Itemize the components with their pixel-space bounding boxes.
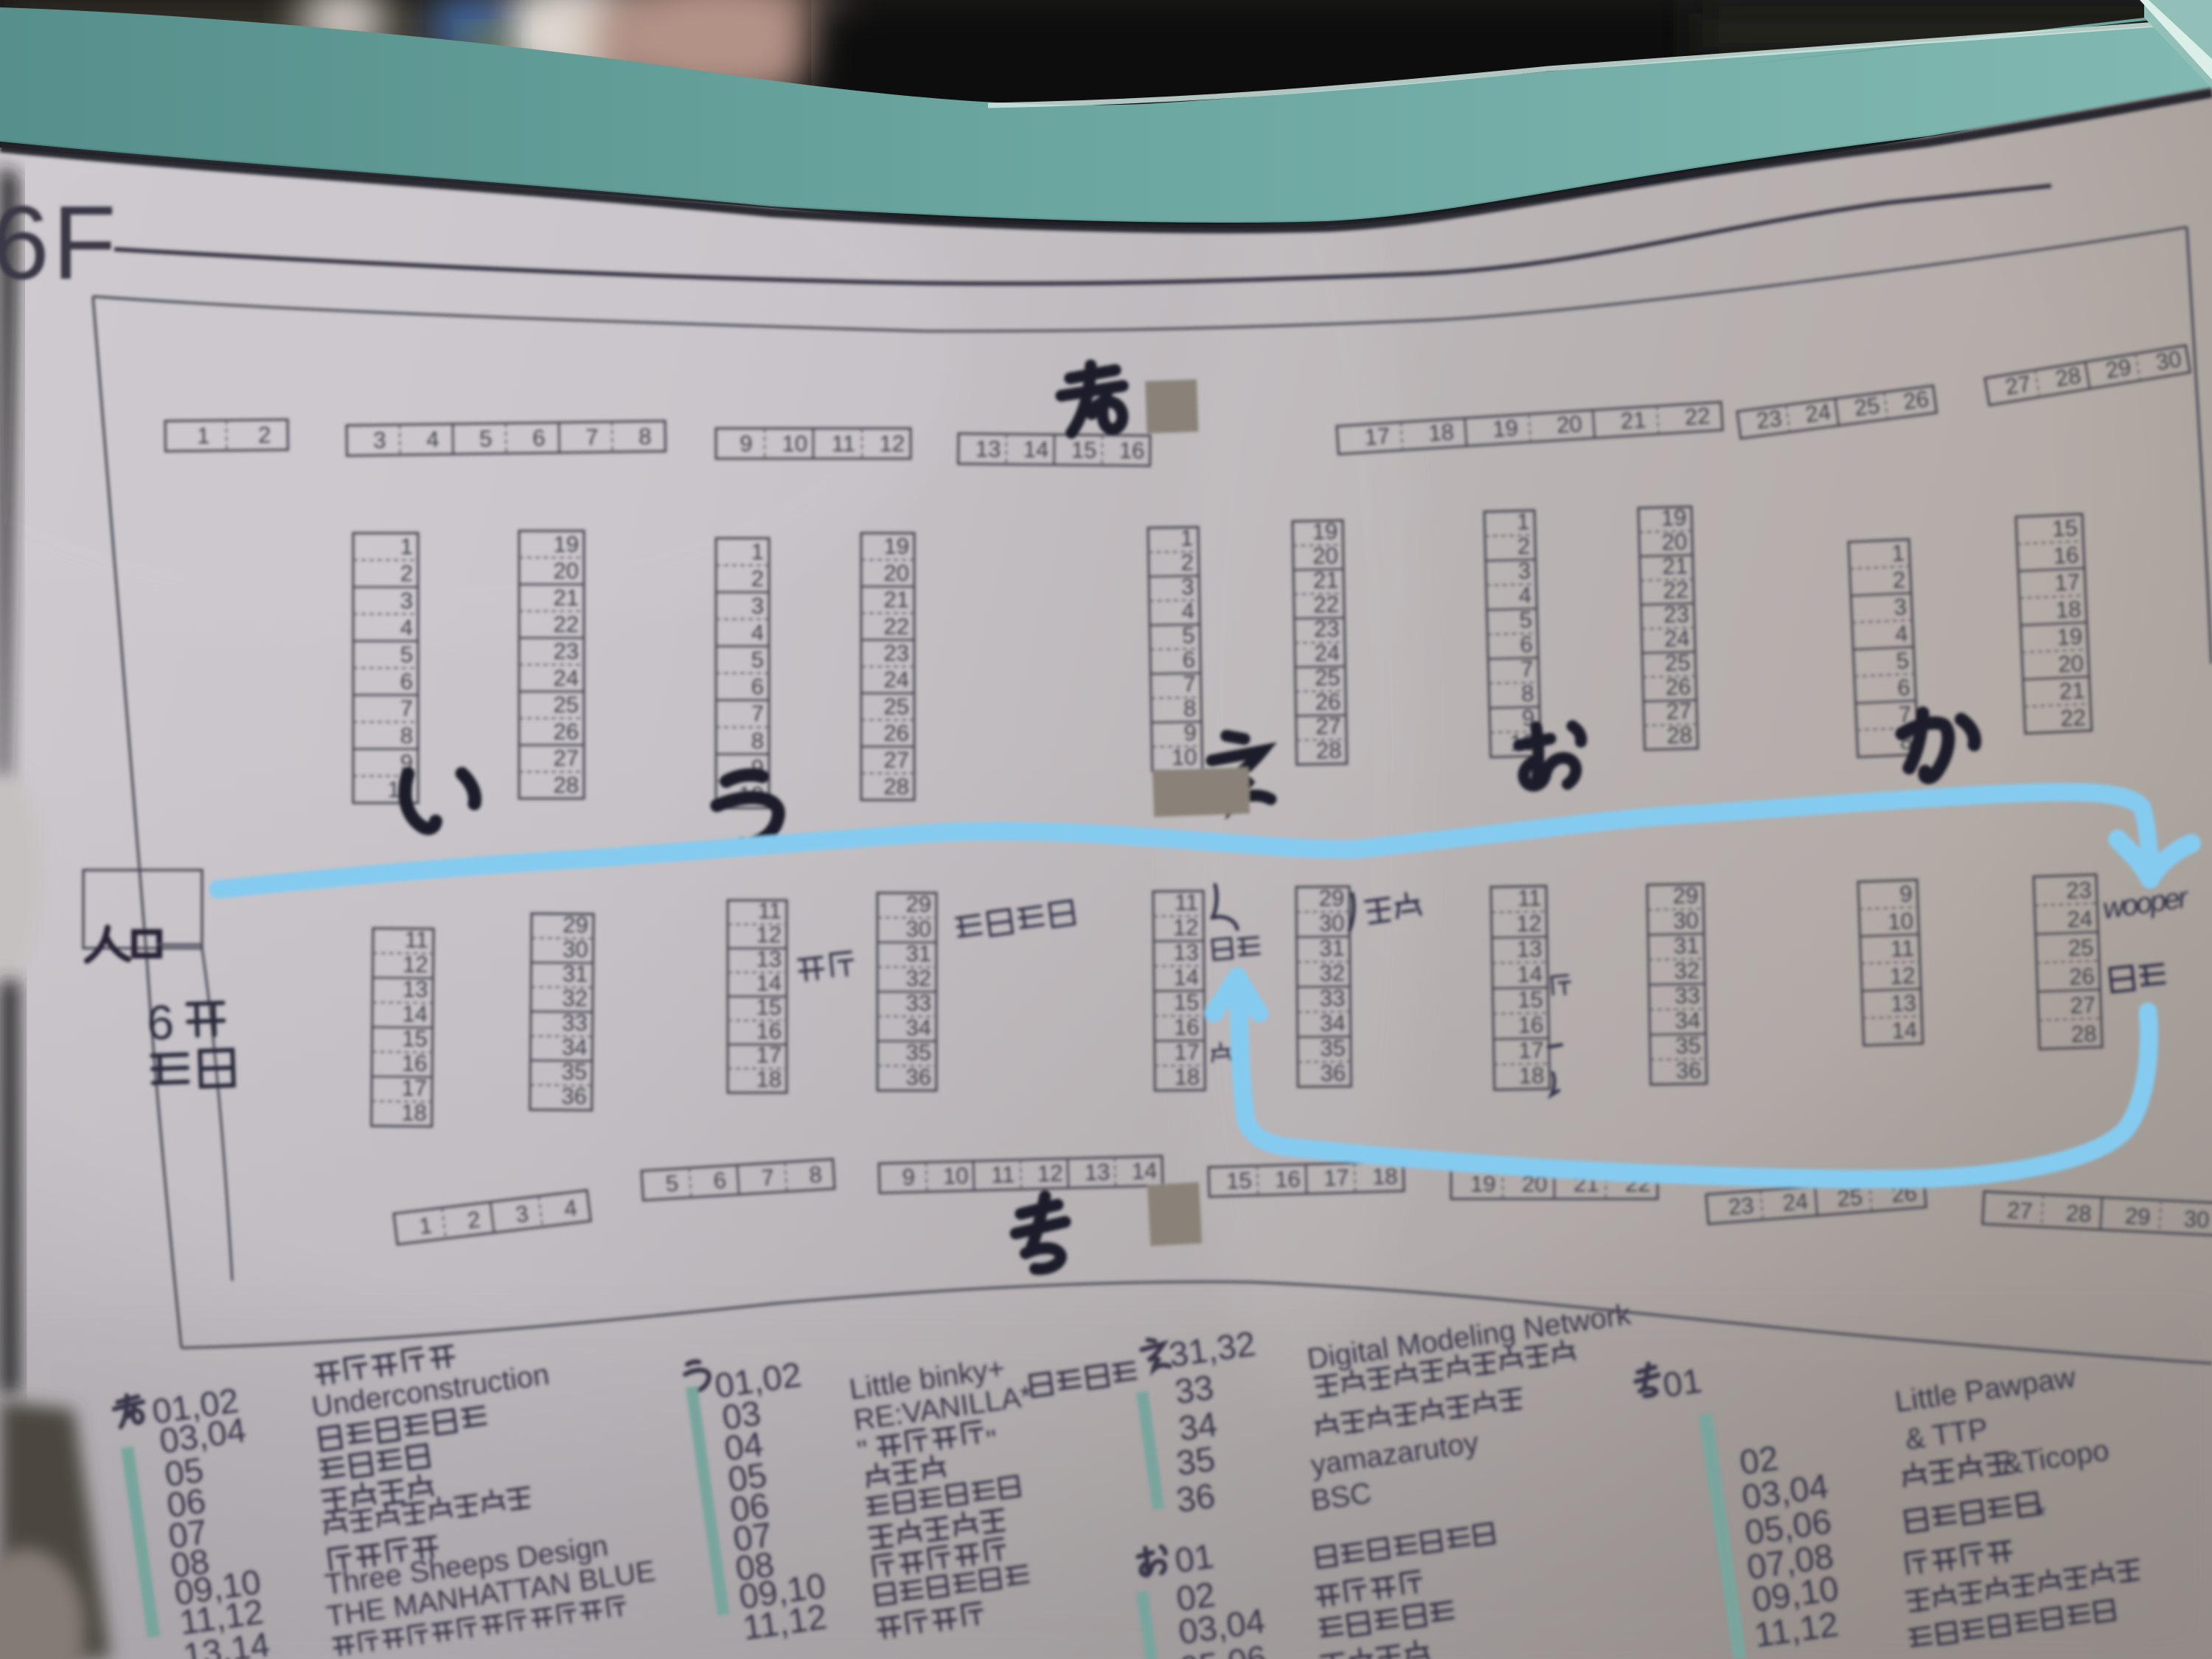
svg-text:3: 3 [1517, 557, 1531, 583]
svg-text:27: 27 [884, 747, 909, 773]
svg-text:5: 5 [1182, 622, 1195, 648]
svg-text:36: 36 [1321, 1060, 1346, 1086]
svg-text:24: 24 [1664, 625, 1690, 652]
svg-text:12: 12 [403, 951, 428, 977]
svg-text:15: 15 [2052, 515, 2079, 541]
svg-text:1: 1 [1180, 525, 1194, 551]
svg-text:15: 15 [1174, 989, 1200, 1015]
svg-text:21: 21 [2059, 678, 2085, 704]
svg-text:27: 27 [1666, 698, 1691, 724]
svg-text:16: 16 [1275, 1166, 1301, 1192]
svg-text:11: 11 [758, 898, 782, 924]
svg-text:16: 16 [1174, 1014, 1200, 1040]
svg-text:31: 31 [1674, 932, 1700, 959]
svg-text:12: 12 [880, 431, 905, 456]
svg-text:5: 5 [1519, 607, 1532, 633]
svg-text:34: 34 [1674, 1007, 1700, 1034]
svg-text:30: 30 [906, 916, 931, 942]
svg-text:22: 22 [1313, 591, 1339, 618]
svg-text:36: 36 [1676, 1057, 1702, 1084]
svg-text:2: 2 [1180, 549, 1194, 575]
svg-text:33: 33 [906, 990, 931, 1016]
svg-text:26: 26 [554, 718, 579, 744]
svg-text:36: 36 [561, 1083, 587, 1109]
svg-text:34: 34 [906, 1015, 931, 1040]
svg-text:11: 11 [1517, 885, 1542, 911]
svg-text:20: 20 [554, 558, 579, 584]
svg-text:32: 32 [1319, 960, 1345, 986]
svg-text:7: 7 [400, 695, 413, 721]
svg-text:6: 6 [1183, 647, 1196, 672]
svg-text:5: 5 [479, 425, 493, 451]
svg-text:19: 19 [1312, 518, 1338, 545]
svg-text:34: 34 [1320, 1010, 1346, 1036]
svg-text:27: 27 [2006, 1197, 2033, 1225]
svg-text:16: 16 [1517, 1012, 1543, 1038]
svg-text:4: 4 [426, 426, 439, 452]
svg-text:3: 3 [1893, 594, 1907, 620]
svg-text:22: 22 [884, 613, 909, 639]
svg-text:22: 22 [554, 611, 579, 637]
svg-text:25: 25 [884, 693, 909, 719]
svg-text:11: 11 [405, 927, 428, 953]
svg-text:18: 18 [2055, 596, 2081, 622]
svg-text:26: 26 [1902, 386, 1930, 414]
svg-text:1: 1 [1891, 540, 1905, 566]
svg-text:23: 23 [884, 640, 909, 666]
svg-text:6: 6 [1520, 631, 1533, 657]
svg-text:3: 3 [1181, 574, 1194, 599]
svg-text:7: 7 [1520, 655, 1534, 681]
svg-text:4: 4 [1894, 621, 1908, 647]
svg-text:21: 21 [1620, 407, 1647, 434]
svg-text:24: 24 [1804, 399, 1832, 428]
svg-text:2: 2 [1517, 533, 1531, 559]
svg-text:15: 15 [1517, 987, 1543, 1013]
svg-text:24: 24 [1314, 640, 1340, 667]
svg-text:25: 25 [554, 692, 579, 717]
svg-text:30: 30 [1673, 908, 1699, 934]
svg-text:20: 20 [1312, 543, 1338, 569]
svg-text:15: 15 [1071, 437, 1097, 463]
svg-text:23: 23 [1728, 1192, 1755, 1220]
svg-text:3: 3 [373, 427, 386, 453]
svg-text:14: 14 [757, 970, 782, 995]
svg-text:23: 23 [1755, 405, 1784, 434]
svg-text:16: 16 [402, 1050, 428, 1076]
svg-text:10: 10 [1172, 744, 1197, 771]
svg-text:25: 25 [2067, 934, 2094, 961]
svg-text:32: 32 [562, 985, 588, 1011]
svg-text:10: 10 [782, 431, 807, 456]
svg-text:19: 19 [1492, 415, 1519, 442]
svg-text:5: 5 [751, 647, 764, 672]
svg-text:9: 9 [902, 1164, 915, 1190]
svg-text:30: 30 [563, 936, 588, 962]
svg-text:25: 25 [1665, 650, 1691, 676]
svg-text:24: 24 [884, 667, 909, 692]
svg-text:15: 15 [1226, 1167, 1253, 1194]
svg-text:6F: 6F [0, 184, 119, 302]
svg-text:27: 27 [2070, 992, 2096, 1018]
svg-text:20: 20 [884, 560, 909, 585]
svg-text:17: 17 [1174, 1039, 1200, 1065]
svg-text:23: 23 [554, 639, 579, 664]
svg-text:14: 14 [1131, 1158, 1157, 1184]
svg-text:36: 36 [906, 1064, 931, 1090]
svg-text:16: 16 [1119, 437, 1145, 463]
svg-text:7: 7 [585, 424, 599, 450]
svg-text:23: 23 [2066, 877, 2093, 903]
svg-text:15: 15 [402, 1026, 428, 1051]
svg-text:17: 17 [1324, 1164, 1350, 1191]
svg-text:18: 18 [1427, 419, 1455, 446]
svg-text:30: 30 [2154, 346, 2183, 375]
svg-text:11: 11 [1890, 935, 1914, 961]
svg-text:12: 12 [1889, 962, 1916, 989]
svg-text:32: 32 [1674, 957, 1700, 984]
svg-text:19: 19 [554, 531, 579, 557]
svg-text:1: 1 [400, 534, 413, 560]
svg-text:16: 16 [757, 1018, 782, 1044]
svg-text:13: 13 [757, 946, 782, 972]
svg-text:27: 27 [554, 745, 579, 771]
svg-text:9: 9 [740, 431, 752, 456]
svg-text:13: 13 [1084, 1159, 1110, 1186]
svg-text:28: 28 [1316, 737, 1342, 764]
svg-text:18: 18 [1175, 1064, 1200, 1090]
svg-text:26: 26 [2069, 963, 2096, 990]
svg-text:2: 2 [400, 560, 413, 586]
svg-text:19: 19 [2056, 623, 2083, 650]
svg-text:21: 21 [884, 587, 909, 613]
svg-text:26: 26 [884, 720, 909, 746]
svg-text:23: 23 [1663, 601, 1689, 627]
svg-text:27: 27 [1315, 713, 1341, 740]
svg-text:12: 12 [1037, 1160, 1062, 1186]
svg-text:33: 33 [1674, 982, 1700, 1009]
svg-text:20: 20 [2058, 650, 2084, 677]
svg-text:29: 29 [2104, 354, 2133, 383]
svg-text:28: 28 [1666, 722, 1692, 748]
svg-text:6: 6 [532, 425, 546, 451]
svg-text:28: 28 [884, 773, 909, 799]
svg-text:1: 1 [1517, 509, 1530, 535]
svg-text:9: 9 [1183, 720, 1197, 745]
svg-text:29: 29 [2124, 1203, 2151, 1230]
svg-text:8: 8 [1521, 681, 1534, 706]
svg-text:19: 19 [1660, 504, 1686, 531]
svg-text:2: 2 [1892, 567, 1906, 594]
svg-text:29: 29 [1318, 885, 1344, 911]
svg-text:01: 01 [1172, 1536, 1216, 1580]
svg-text:5: 5 [1896, 647, 1910, 674]
svg-text:28: 28 [554, 772, 579, 798]
svg-text:31: 31 [1319, 935, 1345, 961]
svg-text:8: 8 [1183, 695, 1197, 721]
svg-text:7: 7 [760, 1164, 774, 1191]
svg-text:14: 14 [1023, 437, 1049, 462]
svg-text:8: 8 [400, 723, 413, 748]
svg-text:4: 4 [1518, 582, 1531, 608]
svg-text:28: 28 [2053, 362, 2083, 392]
svg-text:21: 21 [1662, 553, 1688, 580]
svg-text:19: 19 [1470, 1171, 1495, 1197]
svg-text:28: 28 [2070, 1020, 2097, 1047]
svg-text:35: 35 [1675, 1032, 1701, 1059]
svg-text:17: 17 [1364, 423, 1391, 451]
svg-text:12: 12 [1516, 911, 1542, 937]
svg-text:4: 4 [400, 614, 413, 640]
svg-text:4: 4 [751, 619, 764, 645]
svg-text:2: 2 [258, 422, 271, 448]
svg-text:15: 15 [757, 994, 782, 1020]
svg-text:6: 6 [751, 674, 764, 700]
svg-text:11: 11 [832, 431, 855, 456]
svg-text:30: 30 [2183, 1206, 2210, 1233]
svg-text:1: 1 [197, 422, 210, 448]
svg-text:18: 18 [1519, 1062, 1545, 1089]
svg-text:32: 32 [906, 965, 931, 991]
svg-text:29: 29 [1672, 883, 1698, 909]
svg-text:6: 6 [713, 1167, 727, 1194]
svg-text:01: 01 [1660, 1360, 1704, 1405]
svg-text:30: 30 [1319, 910, 1345, 936]
svg-text:31: 31 [906, 941, 931, 967]
svg-text:3: 3 [751, 593, 764, 619]
svg-text:10: 10 [1888, 908, 1914, 934]
svg-text:14: 14 [1891, 1017, 1918, 1043]
svg-text:16: 16 [2053, 542, 2079, 568]
svg-text:35: 35 [561, 1059, 587, 1085]
svg-text:29: 29 [563, 912, 588, 938]
svg-text:13: 13 [975, 436, 1001, 462]
svg-text:14: 14 [1173, 964, 1199, 990]
svg-text:5: 5 [665, 1170, 679, 1197]
svg-text:25: 25 [1836, 1184, 1863, 1212]
svg-text:2: 2 [751, 566, 764, 591]
svg-text:7: 7 [751, 700, 764, 726]
svg-text:13: 13 [1173, 939, 1199, 965]
svg-text:10: 10 [942, 1163, 968, 1189]
svg-text:17: 17 [2054, 569, 2081, 596]
svg-text:13: 13 [1891, 990, 1917, 1016]
svg-text:18: 18 [401, 1099, 427, 1125]
svg-text:18: 18 [1372, 1163, 1399, 1189]
svg-text:11: 11 [991, 1161, 1015, 1188]
svg-text:29: 29 [906, 891, 931, 917]
svg-text:21: 21 [1313, 567, 1339, 594]
svg-text:34: 34 [562, 1034, 588, 1060]
svg-text:24: 24 [554, 665, 579, 691]
svg-text:18: 18 [757, 1066, 782, 1092]
svg-text:12: 12 [757, 922, 782, 947]
svg-text:22: 22 [2060, 705, 2087, 731]
svg-text:14: 14 [402, 1001, 428, 1026]
svg-text:6: 6 [146, 995, 175, 1050]
svg-text:17: 17 [757, 1042, 782, 1068]
svg-text:20: 20 [1661, 529, 1687, 555]
svg-text:23: 23 [1314, 616, 1340, 642]
svg-text:5: 5 [400, 641, 413, 667]
svg-text:22: 22 [1684, 403, 1711, 430]
svg-text:24: 24 [1782, 1188, 1809, 1216]
svg-text:35: 35 [906, 1040, 931, 1065]
svg-text:13: 13 [1517, 936, 1543, 962]
svg-text:8: 8 [808, 1161, 822, 1188]
svg-text:33: 33 [562, 1009, 588, 1035]
svg-text:8: 8 [751, 728, 764, 754]
svg-text:6: 6 [1897, 675, 1911, 701]
svg-text:19: 19 [884, 533, 909, 559]
svg-text:7: 7 [1183, 671, 1196, 697]
svg-text:3: 3 [400, 588, 413, 613]
svg-text:35: 35 [1320, 1035, 1346, 1061]
svg-text:11: 11 [1175, 889, 1198, 915]
svg-text:22: 22 [1663, 577, 1688, 603]
svg-text:14: 14 [1517, 961, 1543, 987]
svg-text:24: 24 [2067, 905, 2093, 932]
svg-text:27: 27 [2003, 370, 2033, 400]
svg-text:36: 36 [1174, 1475, 1217, 1520]
svg-text:20: 20 [1556, 411, 1583, 438]
svg-text:31: 31 [563, 961, 588, 987]
svg-text:12: 12 [1173, 914, 1199, 940]
svg-text:17: 17 [1518, 1037, 1544, 1064]
svg-text:28: 28 [2065, 1200, 2092, 1227]
svg-text:21: 21 [554, 585, 579, 611]
svg-text:13: 13 [403, 976, 428, 1002]
svg-text:8: 8 [639, 423, 652, 449]
svg-text:9: 9 [1899, 880, 1913, 907]
svg-text:25: 25 [1315, 664, 1340, 691]
svg-text:33: 33 [1320, 985, 1346, 1011]
svg-text:17: 17 [401, 1075, 427, 1101]
svg-text:1: 1 [751, 539, 764, 565]
svg-text:25: 25 [1853, 392, 1882, 421]
svg-text:26: 26 [1315, 689, 1340, 715]
svg-text:26: 26 [1665, 674, 1691, 700]
svg-text:6: 6 [400, 669, 413, 695]
svg-text:4: 4 [1181, 598, 1194, 624]
